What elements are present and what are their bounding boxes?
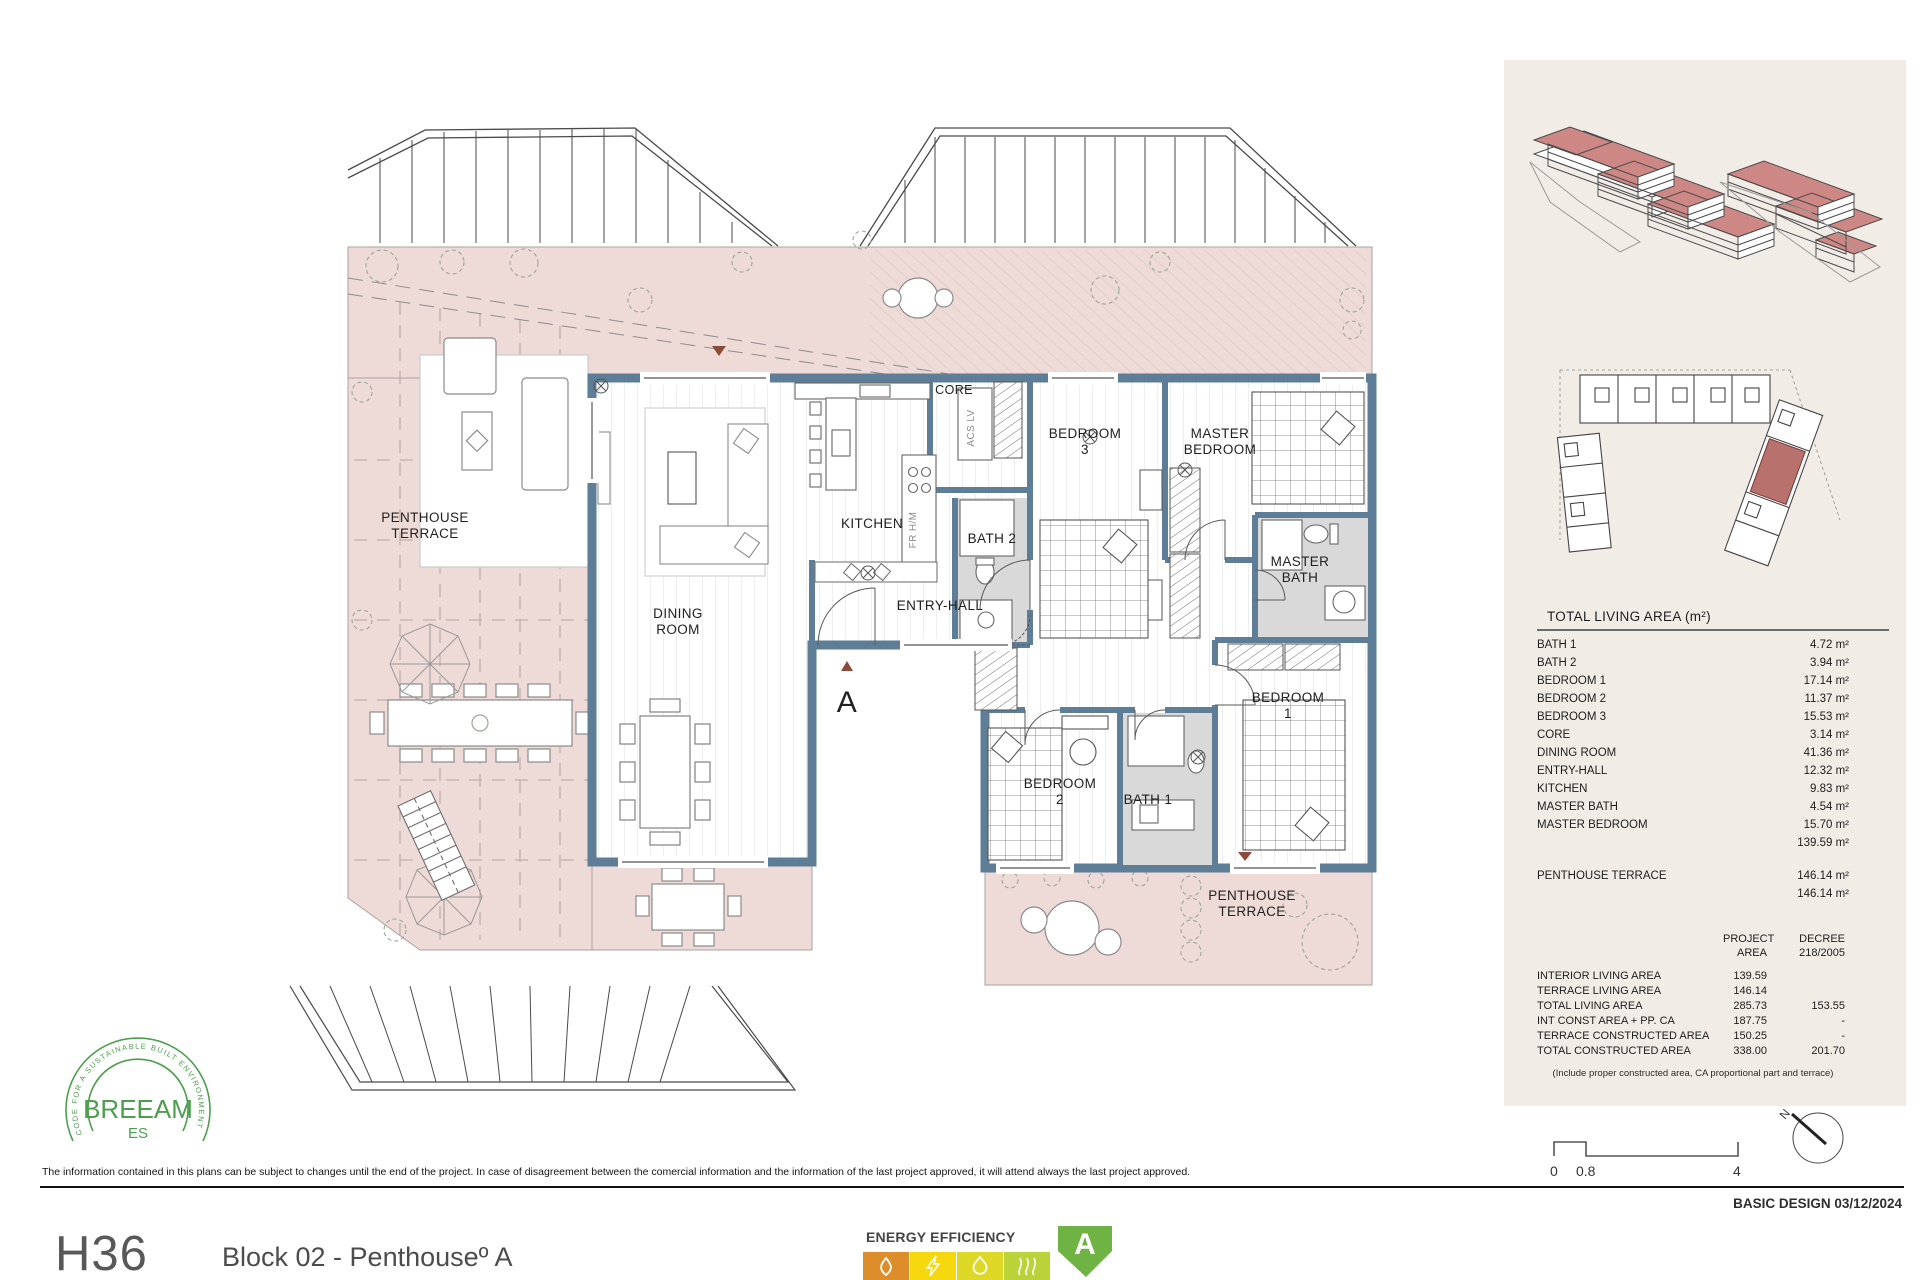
- site-key-plan: [1540, 340, 1870, 575]
- energy-rating-arrow: A: [1058, 1226, 1114, 1280]
- summary-row: TERRACE CONSTRUCTED AREA150.25-: [1537, 1030, 1849, 1045]
- label-master-bath: MASTER: [1271, 554, 1330, 569]
- scale-tick-4: 4: [1733, 1163, 1741, 1179]
- scale-tick-08: 0.8: [1576, 1163, 1596, 1179]
- svg-text:3: 3: [1081, 442, 1089, 457]
- energy-rating-letter: A: [1074, 1228, 1096, 1261]
- floor-plan: PENTHOUSE TERRACE DINING ROOM KITCHEN CO…: [0, 0, 1500, 1200]
- table-row: MASTER BEDROOM15.70 m²: [1537, 819, 1849, 837]
- unit-code: H36: [55, 1226, 148, 1280]
- svg-text:BATH: BATH: [1282, 570, 1319, 585]
- table-row: KITCHEN9.83 m²: [1537, 783, 1849, 801]
- interior-subtotal-row: 139.59 m²: [1537, 837, 1849, 855]
- heat-waves-icon: [1004, 1252, 1050, 1280]
- label-bedroom3: BEDROOM: [1049, 426, 1122, 441]
- water-icon: [863, 1252, 909, 1280]
- footer-rule: [40, 1186, 1904, 1188]
- table-row: MASTER BATH4.54 m²: [1537, 801, 1849, 819]
- electricity-icon: [910, 1252, 956, 1280]
- scale-tick-0: 0: [1550, 1163, 1558, 1179]
- svg-text:TERRACE: TERRACE: [1218, 904, 1285, 919]
- pergola-bottom-icon: [290, 986, 795, 1090]
- scale-and-compass: 0 0.8 4 N: [1540, 1106, 1910, 1184]
- label-kitchen: KITCHEN: [841, 516, 903, 531]
- area-summary-table: PROJECTAREA DECREE218/2005 INTERIOR LIVI…: [1537, 932, 1849, 1079]
- living-area-title: TOTAL LIVING AREA (m²): [1537, 609, 1889, 631]
- axon-view: [1520, 82, 1890, 322]
- table-row: CORE3.14 m²: [1537, 729, 1849, 747]
- summary-row: TERRACE LIVING AREA146.14: [1537, 985, 1849, 1000]
- svg-text:TERRACE: TERRACE: [391, 526, 458, 541]
- table-row: ENTRY-HALL12.32 m²: [1537, 765, 1849, 783]
- terrace-row: PENTHOUSE TERRACE146.14 m²: [1537, 870, 1849, 888]
- master-bed: [1252, 392, 1364, 504]
- summary-header: PROJECTAREA DECREE218/2005: [1537, 932, 1849, 960]
- summary-row: TOTAL LIVING AREA285.73153.55: [1537, 1000, 1849, 1015]
- summary-row: INT CONST AREA + PP. CA187.75-: [1537, 1015, 1849, 1030]
- label-dining: DINING: [653, 606, 703, 621]
- svg-text:1: 1: [1284, 706, 1292, 721]
- breeam-sub: ES: [128, 1125, 148, 1142]
- basic-design-date: BASIC DESIGN 03/12/2024: [1733, 1196, 1902, 1211]
- label-closet-acs: ACS LV: [966, 409, 977, 446]
- pergola-right-icon: [860, 128, 1356, 246]
- pergola-left-icon: [348, 128, 778, 246]
- table-row: DINING ROOM41.36 m²: [1537, 747, 1849, 765]
- label-master-bedroom: MASTER: [1191, 426, 1250, 441]
- info-panel: TOTAL LIVING AREA (m²) BATH 14.72 m² BAT…: [1504, 60, 1906, 1106]
- table-row: BATH 14.72 m²: [1537, 639, 1849, 657]
- label-entry-hall: ENTRY-HALL: [897, 598, 984, 613]
- energy-icon-row: [863, 1252, 1050, 1280]
- roof-hatch-area: [870, 250, 1366, 375]
- scale-bar: [1554, 1142, 1738, 1156]
- drawing-sheet: PENTHOUSE TERRACE DINING ROOM KITCHEN CO…: [0, 0, 1920, 1280]
- section-letter: A: [837, 686, 857, 719]
- label-bath2: BATH 2: [968, 531, 1017, 546]
- summary-note: (Include proper constructed area, CA pro…: [1537, 1068, 1849, 1079]
- svg-text:2: 2: [1056, 792, 1064, 807]
- unit-title: Block 02 - Penthouseº A: [222, 1242, 513, 1273]
- table-row: BEDROOM 117.14 m²: [1537, 675, 1849, 693]
- breeam-logo: CODE FOR A SUSTAINABLE BUILT ENVIRONMENT…: [55, 1030, 225, 1190]
- north-compass-icon: N: [1777, 1106, 1843, 1163]
- table-row: BEDROOM 211.37 m²: [1537, 693, 1849, 711]
- label-core: CORE: [935, 383, 973, 397]
- label-closet-fr: FR H/M: [908, 512, 919, 549]
- hall-console: [815, 562, 937, 582]
- label-terrace-right: PENTHOUSE: [1208, 888, 1296, 903]
- label-bedroom1: BEDROOM: [1252, 690, 1325, 705]
- living-area-table: TOTAL LIVING AREA (m²) BATH 14.72 m² BAT…: [1537, 609, 1889, 906]
- bedroom3-bed: [1040, 520, 1148, 638]
- table-row: BEDROOM 315.53 m²: [1537, 711, 1849, 729]
- table-row: BATH 23.94 m²: [1537, 657, 1849, 675]
- label-terrace-left: PENTHOUSE: [381, 510, 469, 525]
- svg-text:ROOM: ROOM: [656, 622, 700, 637]
- gas-flame-icon: [957, 1252, 1003, 1280]
- breeam-name: BREEAM: [83, 1094, 193, 1124]
- bedroom1-bed: [1243, 700, 1345, 850]
- summary-row: INTERIOR LIVING AREA139.59: [1537, 970, 1849, 985]
- summary-row: TOTAL CONSTRUCTED AREA338.00201.70: [1537, 1045, 1849, 1060]
- label-bath1: BATH 1: [1124, 792, 1173, 807]
- terrace-subtotal-row: 146.14 m²: [1537, 888, 1849, 906]
- compass-n: N: [1777, 1106, 1793, 1122]
- svg-text:BEDROOM: BEDROOM: [1184, 442, 1257, 457]
- energy-efficiency-label: ENERGY EFFICIENCY: [866, 1229, 1015, 1245]
- label-bedroom2: BEDROOM: [1024, 776, 1097, 791]
